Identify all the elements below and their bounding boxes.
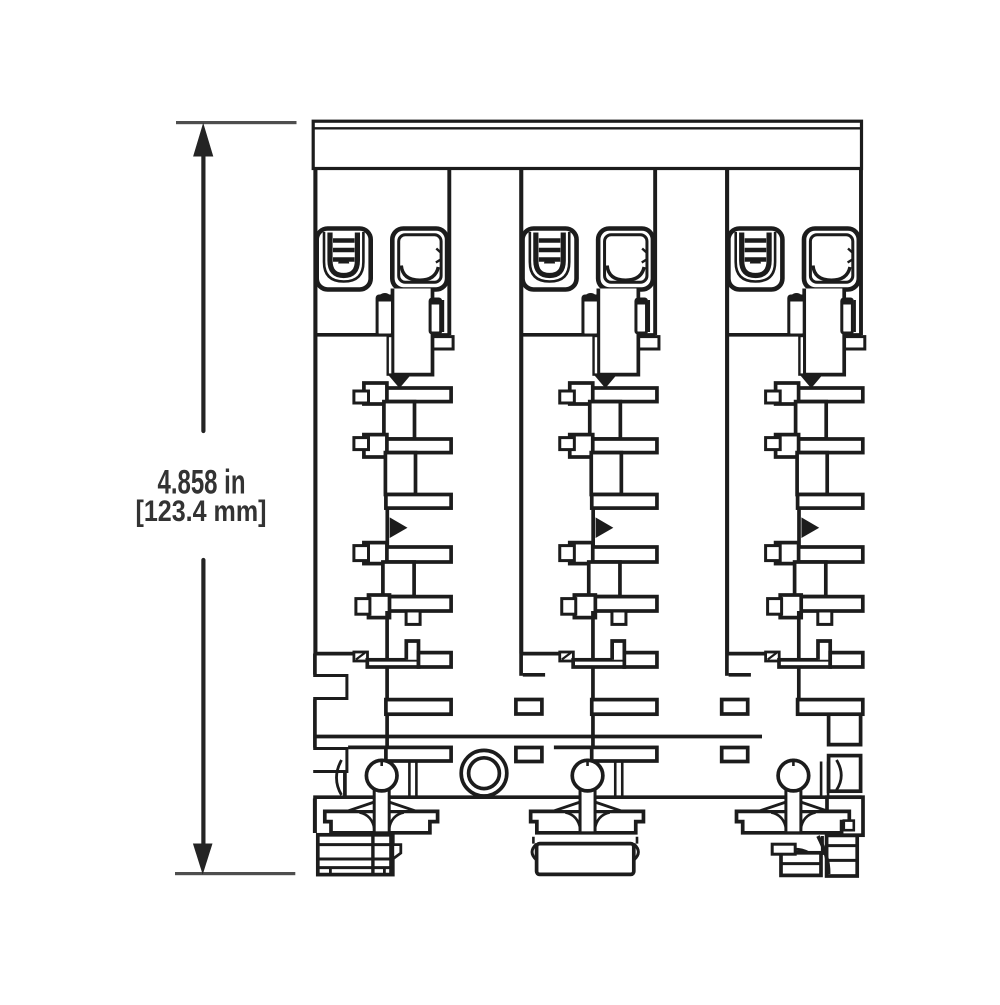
svg-text:[123.4 mm]: [123.4 mm] bbox=[136, 495, 267, 528]
